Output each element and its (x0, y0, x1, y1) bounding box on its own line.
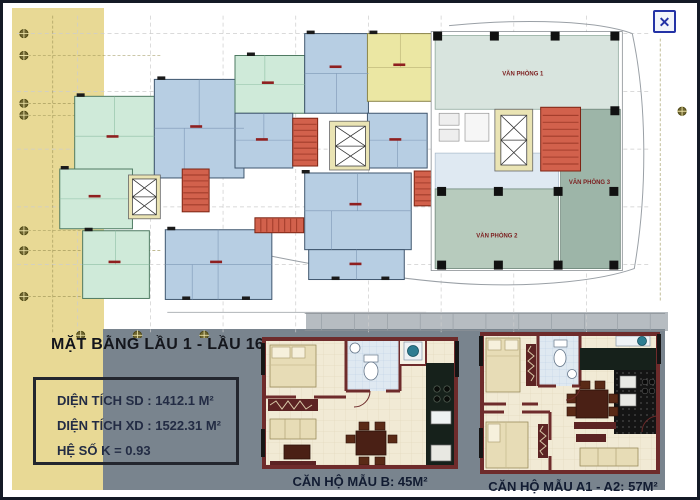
unit-b-plan (258, 333, 462, 473)
close-button[interactable]: ✕ (653, 10, 676, 33)
unit-a-plan (476, 328, 664, 478)
info-line-dien-tich-xd: DIỆN TÍCH XD : 1522.31 M² (57, 413, 236, 438)
close-icon: ✕ (659, 15, 671, 29)
tv-cabinet (576, 434, 606, 442)
sofa (270, 419, 316, 439)
main-floor-plan: VĂN PHÒNG 1 VĂN PHÒNG 2 VĂN PHÒNG 3 (3, 3, 700, 338)
kitchen-counter (580, 348, 658, 370)
toilet-icon (364, 362, 378, 380)
wardrobe (526, 344, 536, 386)
toilet-icon (554, 350, 566, 367)
sink-icon (350, 343, 360, 353)
info-line-he-so-k: HỆ SỐ K = 0.93 (57, 438, 236, 463)
office-2-area (435, 189, 558, 269)
area-info-box: DIỆN TÍCH SD : 1412.1 M² DIỆN TÍCH XD : … (33, 377, 239, 465)
washer-icon (408, 346, 419, 357)
unit-b-caption: CĂN HỘ MẪU B: 45M² (258, 474, 462, 489)
floorplan-viewer-window: VĂN PHÒNG 1 VĂN PHÒNG 2 VĂN PHÒNG 3 ✕ MẶ… (0, 0, 700, 500)
office-1-label: VĂN PHÒNG 1 (502, 69, 544, 77)
dining-table (576, 390, 608, 418)
unit-a-caption: CĂN HỘ MẪU A1 - A2: 57M² (465, 479, 681, 494)
coffee-table (284, 445, 310, 459)
office-3-label: VĂN PHÒNG 3 (569, 178, 611, 186)
office-wing: VĂN PHÒNG 1 VĂN PHÒNG 2 VĂN PHÒNG 3 (431, 32, 622, 271)
sofa (580, 448, 638, 466)
info-line-dien-tich-sd: DIỆN TÍCH SD : 1412.1 M² (57, 388, 236, 413)
office-2-label: VĂN PHÒNG 2 (476, 232, 518, 240)
kitchen-sink-icon (638, 337, 647, 346)
sideboard (574, 422, 616, 429)
dining-table (356, 431, 386, 455)
apartment-wing (60, 31, 468, 313)
sink-icon (568, 370, 577, 379)
